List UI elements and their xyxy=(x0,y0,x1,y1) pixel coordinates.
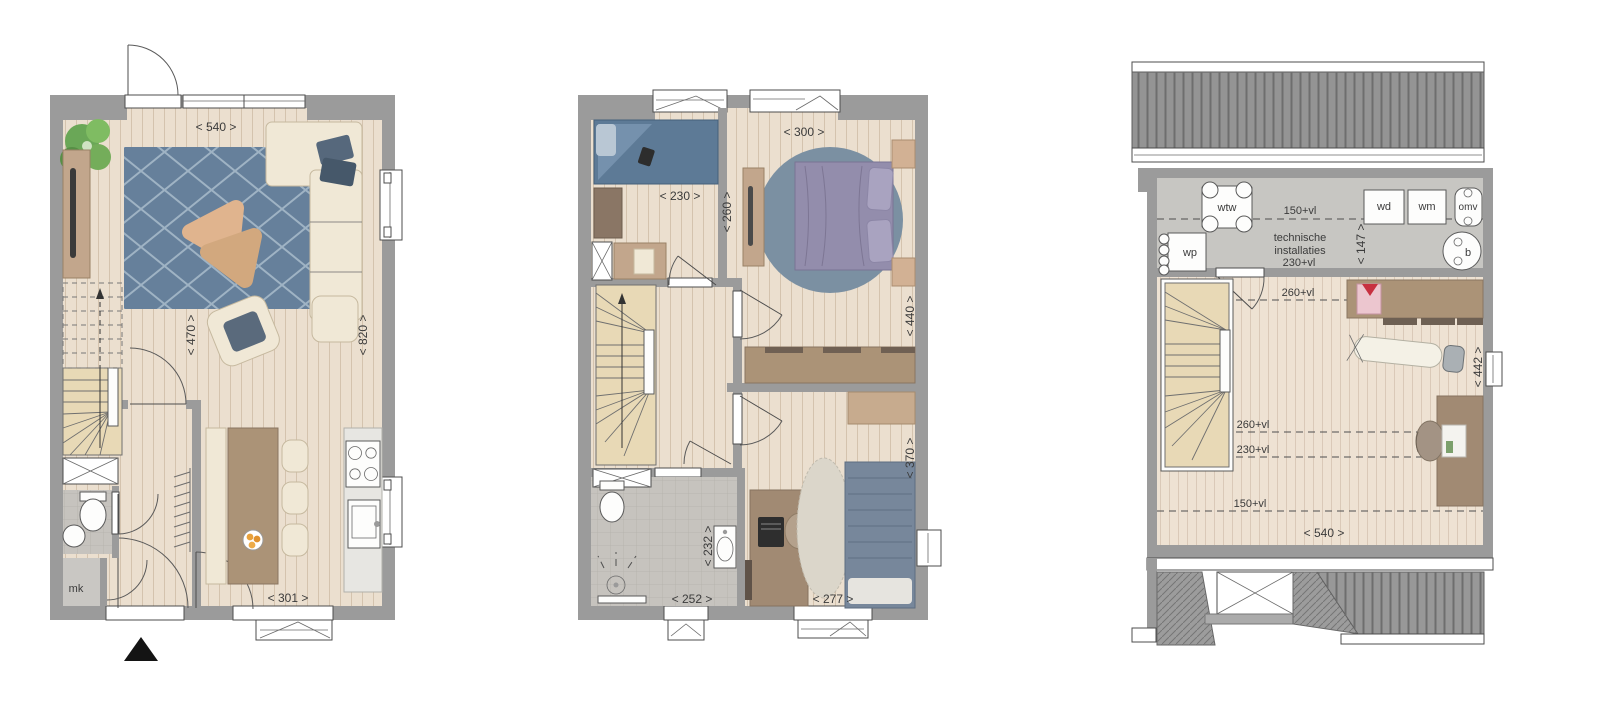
wd-label: wd xyxy=(1376,201,1391,213)
right-window xyxy=(1486,352,1502,386)
dim-top-width: < 540 > xyxy=(196,120,237,134)
sink xyxy=(348,500,380,548)
stairwell xyxy=(1161,279,1233,471)
wtw-label: wtw xyxy=(1217,202,1237,214)
roof-top xyxy=(1132,62,1484,162)
boiler: b xyxy=(1443,232,1481,270)
boiler-label: b xyxy=(1465,247,1471,259)
pillow xyxy=(867,167,894,211)
bottom-window-left xyxy=(664,606,708,640)
dining-chair xyxy=(282,482,308,514)
front-door-arc xyxy=(128,45,178,95)
magazine xyxy=(1442,425,1466,457)
iron xyxy=(1442,345,1465,373)
bedroom1-door-opening xyxy=(668,278,712,287)
toilet xyxy=(80,492,106,531)
entrance-arrow xyxy=(124,637,158,661)
washbasin xyxy=(714,526,736,568)
hrv-unit-wtw: wtw xyxy=(1202,182,1252,232)
first-floor-plan: < 230 > < 260 > < 300 > < 440 > < 232 > … xyxy=(578,90,941,640)
attic-plan: wtw wp wd wm omv b 150+vl tech xyxy=(1132,62,1502,645)
omv-label: omv xyxy=(1459,202,1478,213)
height-150-top-label: 150+vl xyxy=(1284,205,1317,217)
radiator xyxy=(745,560,752,600)
sideboard xyxy=(63,150,90,278)
dining-chair xyxy=(282,440,308,472)
tech-label-line1: technische xyxy=(1274,232,1327,244)
dining-chair xyxy=(282,524,308,556)
dim-attic-depth: < 442 > xyxy=(1471,347,1485,388)
wall-notch xyxy=(1138,168,1148,192)
dim-right-depth: < 820 > xyxy=(356,315,370,356)
entry-opening-bottom xyxy=(106,606,184,620)
stove xyxy=(346,441,380,487)
dining-bench xyxy=(206,428,226,584)
bottom-window xyxy=(233,606,333,640)
wp-label: wp xyxy=(1182,247,1197,259)
dim-living-depth: < 470 > xyxy=(184,315,198,356)
top-corner-block-right xyxy=(307,95,395,120)
omv-unit: omv xyxy=(1455,188,1482,226)
toilet xyxy=(600,481,624,522)
bedroom3-door-opening xyxy=(733,394,742,444)
wardrobe-bedroom3 xyxy=(848,392,915,424)
dim-bedroom2-depth: < 440 > xyxy=(903,296,917,337)
height-230-top-label: 230+vl xyxy=(1283,257,1316,269)
bed-single xyxy=(594,120,718,184)
desk-bedroom1 xyxy=(594,188,622,238)
nightstand xyxy=(892,258,915,286)
dormer-x xyxy=(1217,572,1293,614)
wall-bedroom2-3 xyxy=(727,383,915,392)
top-corner-block-right xyxy=(838,95,928,120)
tech-door-opening xyxy=(1216,268,1264,277)
bottom-window-right xyxy=(794,606,872,638)
dim-kitchen-width: < 301 > xyxy=(268,591,309,605)
cabinet-handle xyxy=(748,186,753,246)
dim-bedroom1-width: < 230 > xyxy=(660,189,701,203)
heat-pump-wp: wp xyxy=(1159,233,1206,275)
hand-basin xyxy=(63,525,85,547)
kitchen-counter xyxy=(344,428,382,592)
top-window-right xyxy=(750,90,840,112)
right-window xyxy=(917,530,941,566)
dim-attic-width: < 540 > xyxy=(1304,526,1345,540)
fruit-bowl xyxy=(243,530,263,550)
right-window-upper xyxy=(380,170,402,240)
bed-bedroom3 xyxy=(845,462,915,608)
top-window-left xyxy=(653,90,727,112)
wardrobe-bedroom2 xyxy=(745,347,915,383)
sheepskin-rug xyxy=(797,458,851,598)
shirt xyxy=(1357,284,1381,314)
dim-bathroom-width: < 252 > xyxy=(672,592,713,606)
sheet xyxy=(848,578,912,604)
cabinet-bedroom2 xyxy=(743,168,764,266)
tv xyxy=(70,168,76,258)
dim-bedroom2-width: < 300 > xyxy=(784,125,825,139)
meter-cupboard-label: mk xyxy=(69,583,84,595)
top-corner-block-left xyxy=(50,95,127,120)
dining-table xyxy=(228,428,278,584)
pillow xyxy=(867,219,894,263)
laptop xyxy=(758,517,784,547)
top-window xyxy=(183,95,305,108)
wm-label: wm xyxy=(1417,201,1435,213)
right-window-lower xyxy=(380,477,402,547)
pillow xyxy=(596,124,616,156)
counter xyxy=(1347,280,1483,325)
floorplan-sheet: mk < 540 > < 470 > < 820 > < 301 > xyxy=(0,0,1599,704)
tech-label-line2: installaties xyxy=(1274,245,1326,257)
bedroom2-door-opening xyxy=(733,291,742,337)
height-230-mid-label: 230+vl xyxy=(1237,444,1270,456)
floorplan-drawing: mk < 540 > < 470 > < 820 > < 301 > xyxy=(0,0,1599,704)
dim-bedroom3-width: < 277 > xyxy=(813,592,854,606)
closet-x-bedroom1 xyxy=(592,242,612,280)
dresser-bedroom1 xyxy=(614,243,666,279)
dim-bathroom-depth: < 232 > xyxy=(701,526,715,567)
front-door-opening xyxy=(125,95,181,108)
dim-bedroom3-depth: < 370 > xyxy=(903,438,917,479)
dim-landing-depth: < 260 > xyxy=(720,192,734,233)
storage-cupboard-x xyxy=(63,458,118,484)
stairs xyxy=(596,285,656,465)
ground-floor-plan: mk < 540 > < 470 > < 820 > < 301 > xyxy=(50,45,402,661)
height-150-low-label: 150+vl xyxy=(1234,498,1267,510)
height-260-top-label: 260+vl xyxy=(1282,287,1315,299)
top-corner-block-left xyxy=(578,95,655,120)
nightstand xyxy=(892,140,915,168)
roof-bottom xyxy=(1132,558,1493,645)
desk-chair xyxy=(1416,421,1444,461)
dim-tech-depth: < 147 > xyxy=(1354,224,1368,265)
height-260-mid-label: 260+vl xyxy=(1237,419,1270,431)
dryer-wd: wd xyxy=(1364,190,1404,224)
washer-wm: wm xyxy=(1408,190,1446,224)
